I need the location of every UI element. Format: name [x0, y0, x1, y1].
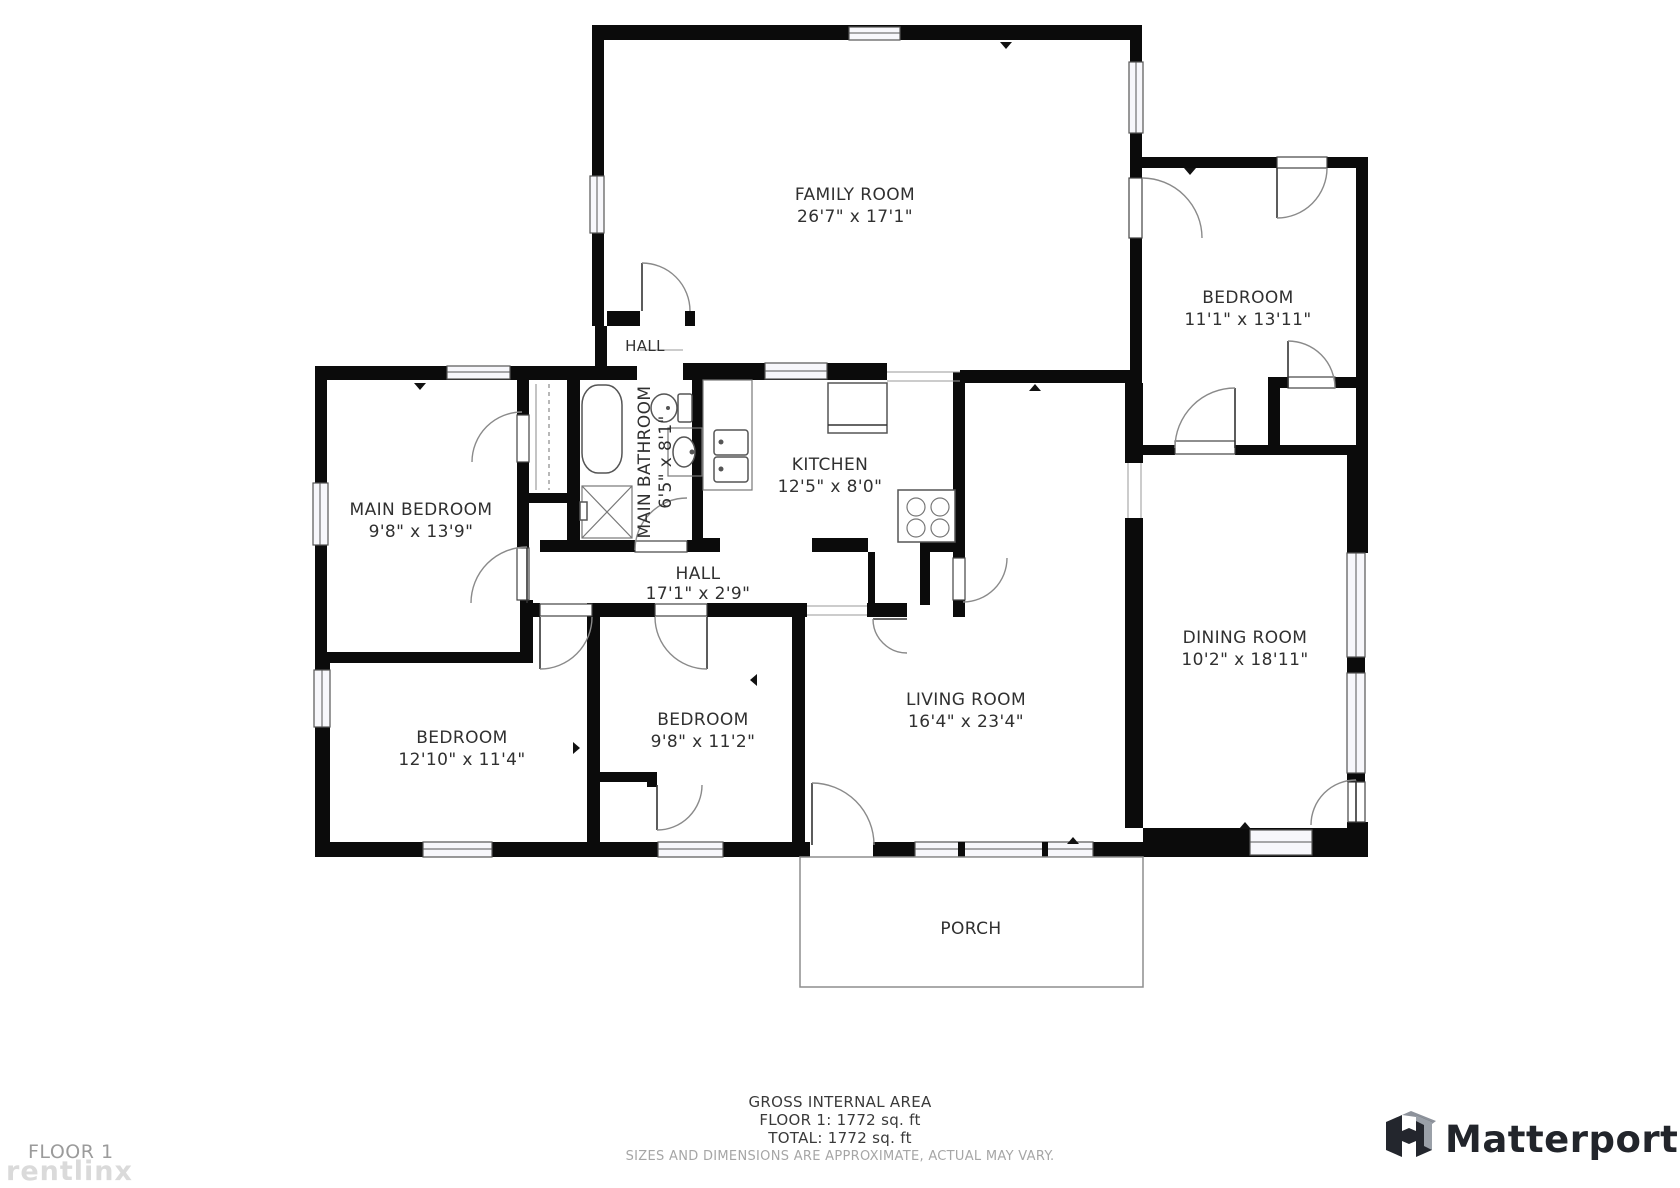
matterport-icon	[1386, 1111, 1436, 1157]
room-dims-label: 12'10" x 11'4"	[398, 750, 525, 770]
matterport-logo: Matterport	[1386, 1111, 1678, 1161]
wall-segment	[1130, 25, 1142, 62]
wall-segment	[647, 772, 657, 787]
wall-segment	[587, 603, 600, 842]
wall-segment	[792, 617, 805, 842]
fixtures	[536, 380, 955, 542]
wall-segment	[592, 25, 604, 176]
wall-segment	[315, 842, 810, 857]
room-dims-label: 12'5" x 8'0"	[778, 477, 883, 497]
window	[915, 842, 1093, 857]
room-dims-label: 11'1" x 13'11"	[1184, 310, 1311, 330]
wall-segment	[567, 378, 580, 484]
room-dims-label: 6'5" x 8'1"	[656, 415, 676, 509]
wall-segment	[517, 503, 529, 548]
door-swing	[873, 619, 907, 653]
total-area-value: TOTAL: 1772 sq. ft	[767, 1129, 912, 1147]
wall-segment	[1347, 822, 1368, 857]
room-name-label: DINING ROOM	[1183, 628, 1308, 648]
disclaimer-text: SIZES AND DIMENSIONS ARE APPROXIMATE, AC…	[626, 1149, 1055, 1164]
room-name-label: MAIN BATHROOM	[635, 385, 655, 538]
room-name-label: BEDROOM	[1202, 288, 1294, 308]
room-dims-label: 10'2" x 18'11"	[1181, 650, 1308, 670]
window	[1347, 553, 1365, 657]
wall-segment	[1268, 388, 1280, 445]
wall-segment	[1347, 455, 1368, 553]
wall-segment	[695, 538, 720, 552]
room-name-label: PORCH	[940, 919, 1001, 939]
wall-segment	[1335, 377, 1357, 388]
matterport-wordmark: Matterport	[1445, 1118, 1678, 1161]
wall-segment	[812, 538, 868, 552]
room-name-label: HALL	[676, 564, 721, 584]
window	[447, 366, 510, 379]
room-name-label: KITCHEN	[792, 455, 868, 475]
door-swing	[953, 558, 1007, 602]
window	[849, 27, 900, 40]
wall-segment	[567, 484, 580, 540]
door-swing	[642, 263, 690, 311]
wall-segment	[595, 326, 607, 368]
shower	[580, 486, 632, 538]
room-dims-label: 26'7" x 17'1"	[797, 207, 913, 227]
room-name-label: HALL	[625, 337, 665, 355]
wall-segment	[868, 552, 875, 605]
wall-segment	[1130, 157, 1368, 168]
room-dims-label: 9'8" x 13'9"	[369, 522, 474, 542]
wall-segment	[520, 600, 533, 652]
room-name-label: BEDROOM	[657, 710, 749, 730]
bathtub	[582, 385, 622, 473]
room-labels: FAMILY ROOM 26'7" x 17'1" BEDROOM 11'1" …	[350, 185, 1312, 939]
door-swing	[1277, 157, 1327, 218]
wall-segment	[1130, 133, 1142, 168]
wall-segment	[867, 603, 907, 617]
door-swing	[1311, 780, 1365, 825]
window	[658, 842, 723, 857]
room-name-label: BEDROOM	[416, 728, 508, 748]
window	[590, 176, 604, 233]
door-swing	[1129, 178, 1202, 238]
room-dims-label: 17'1" x 2'9"	[646, 584, 751, 604]
room-dims-label: 16'4" x 23'4"	[908, 712, 1024, 732]
window	[313, 483, 328, 545]
window	[1347, 673, 1365, 773]
wall-segment	[707, 603, 807, 617]
room-name-label: LIVING ROOM	[906, 690, 1026, 710]
wall-segment	[685, 311, 695, 326]
refrigerator	[828, 383, 887, 433]
room-name-label: FAMILY ROOM	[795, 185, 915, 205]
wall-segment	[607, 311, 640, 326]
wall-segment	[540, 540, 635, 552]
window	[1250, 830, 1312, 855]
wall-segment	[1347, 657, 1365, 673]
wall-segment	[1268, 377, 1288, 388]
kitchen-sink	[703, 380, 752, 490]
window	[423, 842, 492, 857]
rentlinx-watermark: rentlinx	[6, 1156, 133, 1187]
room-name-label: MAIN BEDROOM	[350, 500, 493, 520]
door-swing	[1175, 388, 1235, 454]
gross-area-label: GROSS INTERNAL AREA	[748, 1093, 932, 1111]
wall-segment	[1130, 238, 1142, 388]
wall-segment	[920, 552, 930, 605]
door-swing	[1288, 341, 1335, 388]
door-swing	[471, 547, 529, 603]
door-swing	[540, 604, 592, 669]
window	[1129, 62, 1143, 133]
wall-segment	[592, 233, 604, 326]
room-dims-label: 9'8" x 11'2"	[651, 732, 756, 752]
floor-plan-canvas: FAMILY ROOM 26'7" x 17'1" BEDROOM 11'1" …	[0, 0, 1680, 1188]
window	[314, 670, 330, 727]
stove	[898, 490, 955, 542]
door-swing	[472, 412, 529, 462]
wall-segment	[1356, 157, 1368, 455]
floor-area-value: FLOOR 1: 1772 sq. ft	[759, 1111, 920, 1129]
door-swing	[657, 785, 702, 830]
closet-rod	[536, 384, 549, 490]
window	[765, 363, 827, 379]
wall-segment	[517, 462, 529, 493]
area-summary: GROSS INTERNAL AREA FLOOR 1: 1772 sq. ft…	[626, 1093, 1055, 1164]
wall-segment	[592, 603, 655, 617]
floor-plan-page: FAMILY ROOM 26'7" x 17'1" BEDROOM 11'1" …	[0, 0, 1680, 1188]
wall-segment	[315, 652, 533, 663]
wall-segment	[517, 378, 529, 415]
wall-segment	[1125, 383, 1143, 463]
door-swing	[655, 604, 707, 669]
door-swing	[812, 783, 874, 845]
wall-segment	[1130, 168, 1142, 178]
wall-segment	[1125, 518, 1143, 828]
wall-segment	[1235, 445, 1368, 455]
wall-segment	[960, 370, 1142, 383]
